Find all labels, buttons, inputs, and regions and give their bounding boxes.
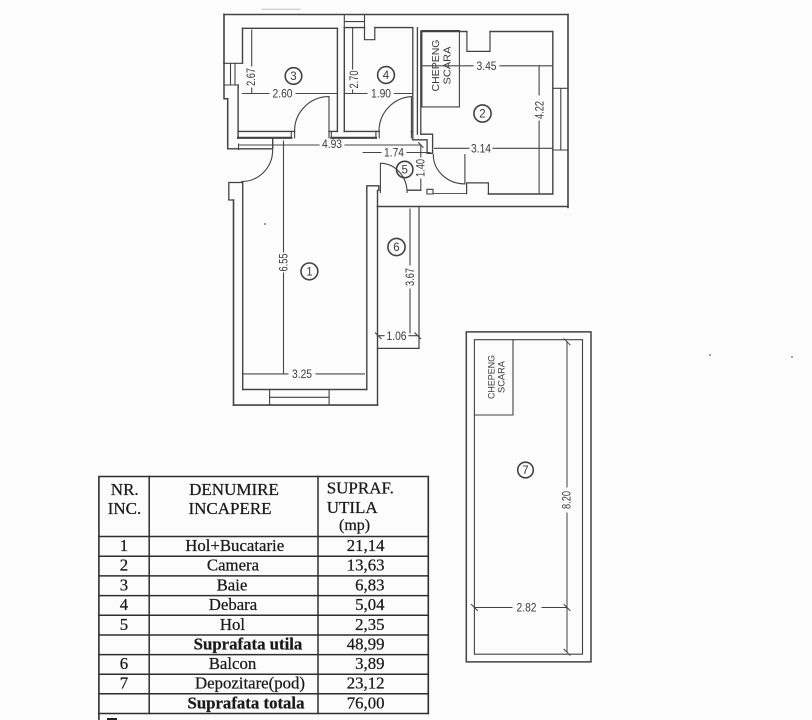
svg-text:Hol+Bucatarie: Hol+Bucatarie bbox=[185, 536, 284, 555]
svg-text:3,89: 3,89 bbox=[355, 654, 384, 673]
svg-text:2,35: 2,35 bbox=[355, 615, 384, 634]
svg-text:Baie: Baie bbox=[217, 575, 248, 594]
svg-text:3.25: 3.25 bbox=[292, 369, 312, 381]
svg-text:(mp): (mp) bbox=[339, 517, 370, 534]
svg-text:Balcon: Balcon bbox=[209, 654, 257, 673]
svg-text:2: 2 bbox=[120, 556, 128, 575]
svg-text:6.55: 6.55 bbox=[278, 254, 290, 272]
svg-text:SCARA: SCARA bbox=[442, 47, 454, 85]
svg-text:6: 6 bbox=[120, 654, 128, 673]
svg-text:4.22: 4.22 bbox=[535, 101, 547, 119]
svg-text:SUPRAF.: SUPRAF. bbox=[327, 479, 394, 498]
svg-text:UTILA: UTILA bbox=[327, 498, 379, 517]
svg-text:3.45: 3.45 bbox=[477, 61, 497, 73]
svg-text:23,12: 23,12 bbox=[347, 674, 385, 693]
svg-text:4.93: 4.93 bbox=[322, 139, 342, 151]
svg-text:3.14: 3.14 bbox=[471, 143, 492, 155]
svg-text:CHEPENG: CHEPENG bbox=[487, 355, 497, 399]
svg-text:INC.: INC. bbox=[108, 499, 142, 518]
svg-text:2.67: 2.67 bbox=[246, 68, 258, 86]
svg-text:NR.: NR. bbox=[111, 480, 139, 499]
svg-text:21,14: 21,14 bbox=[347, 536, 385, 555]
svg-text:Debara: Debara bbox=[209, 595, 258, 614]
svg-text:1: 1 bbox=[120, 536, 128, 555]
svg-text:1.06: 1.06 bbox=[387, 331, 407, 343]
svg-text:SCARA: SCARA bbox=[497, 361, 507, 393]
svg-text:13,63: 13,63 bbox=[347, 556, 385, 575]
svg-text:Depozitare(pod): Depozitare(pod) bbox=[195, 674, 305, 693]
svg-text:7: 7 bbox=[120, 674, 128, 693]
svg-text:CHEPENG: CHEPENG bbox=[430, 40, 442, 92]
svg-text:2.70: 2.70 bbox=[349, 71, 361, 89]
svg-text:1: 1 bbox=[306, 267, 312, 279]
svg-text:1.74: 1.74 bbox=[384, 148, 405, 160]
svg-text:1.40: 1.40 bbox=[416, 159, 428, 177]
svg-text:2.82: 2.82 bbox=[517, 603, 537, 615]
svg-text:7: 7 bbox=[522, 465, 528, 477]
svg-text:Suprafata utila: Suprafata utila bbox=[194, 634, 303, 653]
svg-text:5,04: 5,04 bbox=[355, 595, 385, 614]
svg-text:5: 5 bbox=[401, 165, 407, 177]
svg-text:6: 6 bbox=[393, 242, 399, 254]
svg-text:DENUMIRE: DENUMIRE bbox=[189, 480, 279, 499]
svg-text:48,99: 48,99 bbox=[347, 634, 385, 653]
svg-text:6,83: 6,83 bbox=[355, 575, 384, 594]
svg-text:3.67: 3.67 bbox=[405, 268, 417, 286]
svg-text:3: 3 bbox=[120, 575, 128, 594]
svg-text:Suprafata totala: Suprafata totala bbox=[187, 693, 305, 712]
svg-text:5: 5 bbox=[120, 615, 128, 634]
svg-text:3: 3 bbox=[290, 71, 296, 83]
svg-text:Hol: Hol bbox=[220, 615, 246, 634]
svg-text:76,00: 76,00 bbox=[347, 693, 385, 712]
svg-text:8.20: 8.20 bbox=[562, 491, 574, 509]
svg-text:INCAPERE: INCAPERE bbox=[188, 499, 271, 518]
svg-text:1.90: 1.90 bbox=[371, 89, 391, 101]
svg-text:2.60: 2.60 bbox=[273, 89, 293, 101]
svg-text:Camera: Camera bbox=[207, 556, 260, 575]
svg-text:4: 4 bbox=[120, 595, 129, 614]
svg-text:2: 2 bbox=[479, 109, 485, 121]
svg-text:4: 4 bbox=[383, 70, 390, 82]
